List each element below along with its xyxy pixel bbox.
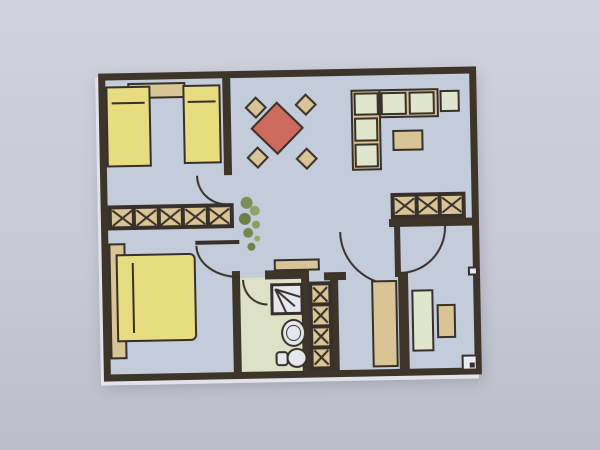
wall-notch-top [468, 266, 478, 275]
single-bed-2 [182, 84, 222, 164]
door-leaf-bedroom2 [195, 240, 239, 245]
sofa-cushion [353, 92, 378, 115]
wardrobe-x-cell [311, 326, 331, 348]
wardrobe-x-cell [311, 304, 331, 326]
wardrobe-x-cell [416, 194, 440, 216]
bed-duvet-line [132, 263, 135, 334]
photo-background [0, 0, 600, 450]
side-table [437, 304, 457, 338]
double-bed [116, 253, 198, 343]
wardrobe-x-cell [207, 205, 232, 226]
wall-hall-left-stub [324, 272, 346, 280]
sofa-cushion [408, 91, 434, 114]
sofa-cushion [354, 117, 378, 141]
sofa-cushion [354, 143, 378, 167]
bed-pillow-line [112, 102, 145, 105]
wardrobe-left [108, 203, 234, 230]
single-bed-1 [105, 86, 152, 168]
wardrobe-x-cell [110, 207, 135, 228]
wardrobe-right [390, 192, 465, 219]
hall-wardrobe [371, 280, 399, 367]
wardrobe-x-cell [440, 194, 464, 216]
corner-mark [462, 354, 476, 368]
armchair [439, 90, 459, 112]
wardrobe-x-cell [158, 206, 183, 227]
floor-plan [98, 66, 482, 381]
bath-cabinet [274, 258, 320, 271]
desk [411, 289, 434, 351]
wardrobe-x-cell [392, 195, 416, 217]
wardrobe-x-cell [311, 347, 331, 369]
closet-tall [308, 281, 334, 370]
shower [270, 283, 304, 316]
bed-pillow-line [188, 100, 215, 103]
corner-mark-dot [470, 362, 475, 367]
wall-hall-right [398, 273, 410, 369]
sofa-cushion [380, 92, 406, 115]
wardrobe-x-cell [183, 206, 208, 227]
coffee-table [392, 129, 423, 151]
wardrobe-x-cell [310, 283, 330, 305]
wardrobe-x-cell [134, 207, 159, 228]
